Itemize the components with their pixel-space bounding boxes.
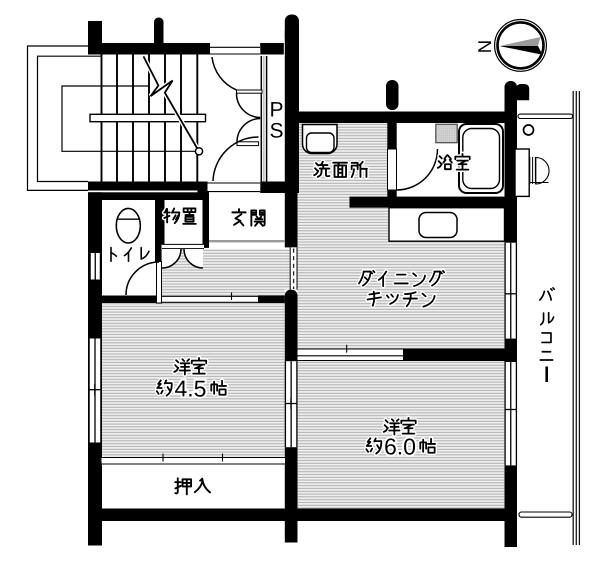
svg-text:6.0: 6.0 <box>384 433 416 459</box>
svg-text:P: P <box>269 98 283 121</box>
svg-text:N: N <box>474 40 495 53</box>
svg-text:S: S <box>269 119 283 142</box>
svg-text:4.5: 4.5 <box>174 375 206 401</box>
